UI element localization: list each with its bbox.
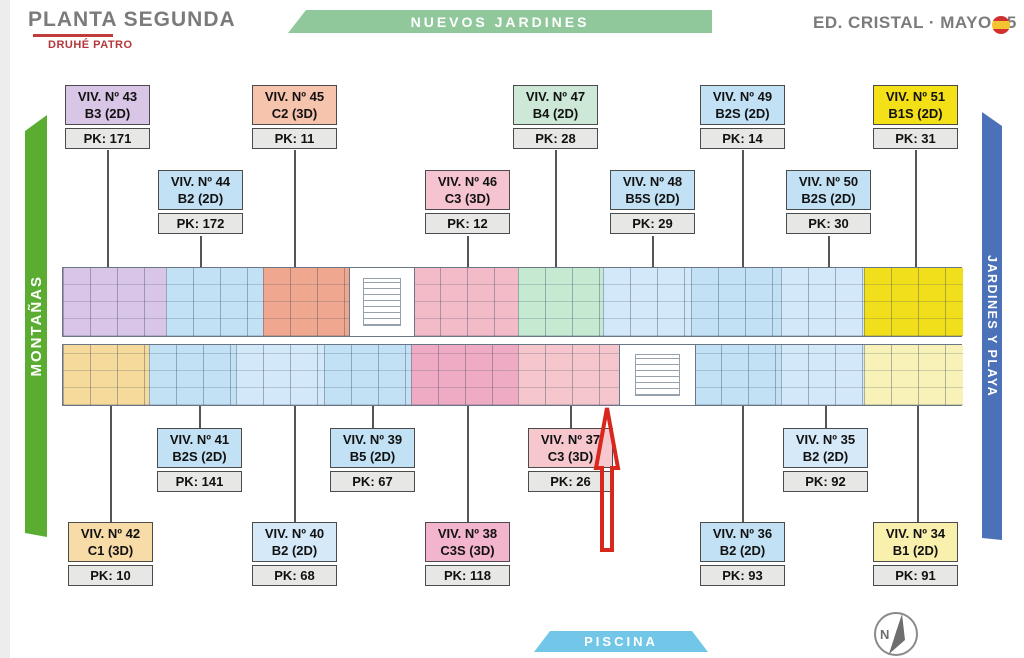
leader-line (828, 236, 830, 267)
unit-type: B1 (2D) (875, 542, 956, 559)
brand-name: DRUHÉ PATRO (48, 39, 133, 51)
unit-label-40[interactable]: VIV. Nº 40 B2 (2D) PK: 68 (252, 522, 337, 586)
plan-section-38[interactable] (411, 345, 518, 405)
leader-line (294, 406, 296, 522)
leader-line (825, 406, 827, 428)
banner-montanas: MONTAÑAS (25, 115, 47, 537)
plan-section-43[interactable] (63, 268, 166, 336)
unit-box-43[interactable]: VIV. Nº 43 B3 (2D) (65, 85, 150, 125)
unit-type: B2S (2D) (788, 190, 869, 207)
unit-type: B5 (2D) (332, 448, 413, 465)
south-wing (62, 344, 962, 406)
banner-jardines-playa-label: JARDINES Y PLAYA (985, 255, 999, 397)
unit-number: VIV. Nº 49 (702, 88, 783, 105)
unit-parking-41: PK: 141 (157, 471, 242, 492)
stair-core (349, 268, 415, 336)
plan-section-34[interactable] (864, 345, 963, 405)
unit-label-51[interactable]: VIV. Nº 51 B1S (2D) PK: 31 (873, 85, 958, 149)
plan-section-41[interactable] (149, 345, 236, 405)
leader-line (742, 406, 744, 522)
leader-line (742, 150, 744, 267)
unit-parking-34: PK: 91 (873, 565, 958, 586)
title-underline (33, 34, 113, 37)
unit-type: C2 (3D) (254, 105, 335, 122)
unit-parking-49: PK: 14 (700, 128, 785, 149)
unit-box-35[interactable]: VIV. Nº 35 B2 (2D) (783, 428, 868, 468)
elevator-core (619, 345, 696, 405)
unit-label-38[interactable]: VIV. Nº 38 C3S (3D) PK: 118 (425, 522, 510, 586)
unit-number: VIV. Nº 44 (160, 173, 241, 190)
unit-type: C1 (3D) (70, 542, 151, 559)
plan-section-45[interactable] (263, 268, 349, 336)
unit-label-47[interactable]: VIV. Nº 47 B4 (2D) PK: 28 (513, 85, 598, 149)
unit-label-43[interactable]: VIV. Nº 43 B3 (2D) PK: 171 (65, 85, 150, 149)
unit-parking-43: PK: 171 (65, 128, 150, 149)
unit-box-45[interactable]: VIV. Nº 45 C2 (3D) (252, 85, 337, 125)
plan-section-37[interactable] (518, 345, 619, 405)
plan-section-46[interactable] (413, 268, 518, 336)
leader-line (915, 150, 917, 267)
plan-section-36[interactable] (694, 345, 781, 405)
plan-section-48[interactable] (603, 268, 691, 336)
unit-type: B2S (2D) (159, 448, 240, 465)
unit-box-48[interactable]: VIV. Nº 48 B5S (2D) (610, 170, 695, 210)
plan-section-44[interactable] (166, 268, 263, 336)
unit-parking-48: PK: 29 (610, 213, 695, 234)
unit-type: B4 (2D) (515, 105, 596, 122)
floor-plan-page: PLANTA SEGUNDA DRUHÉ PATRO NUEVOS JARDIN… (0, 0, 1024, 658)
unit-parking-36: PK: 93 (700, 565, 785, 586)
plan-section-49[interactable] (691, 268, 781, 336)
plan-section-40[interactable] (236, 345, 324, 405)
unit-number: VIV. Nº 48 (612, 173, 693, 190)
plan-section-42[interactable] (63, 345, 149, 405)
leader-line (555, 150, 557, 267)
unit-parking-51: PK: 31 (873, 128, 958, 149)
plan-section-39[interactable] (324, 345, 411, 405)
banner-piscina: PISCINA (534, 631, 708, 652)
leader-line (199, 406, 201, 428)
unit-number: VIV. Nº 46 (427, 173, 508, 190)
unit-number: VIV. Nº 51 (875, 88, 956, 105)
unit-type: B2 (2D) (160, 190, 241, 207)
unit-label-42[interactable]: VIV. Nº 42 C1 (3D) PK: 10 (68, 522, 153, 586)
building-floor-plan (62, 267, 962, 406)
unit-box-38[interactable]: VIV. Nº 38 C3S (3D) (425, 522, 510, 562)
unit-box-34[interactable]: VIV. Nº 34 B1 (2D) (873, 522, 958, 562)
unit-type: B3 (2D) (67, 105, 148, 122)
leader-line (467, 236, 469, 267)
unit-number: VIV. Nº 45 (254, 88, 335, 105)
north-wing (62, 267, 962, 337)
leader-line (917, 406, 919, 522)
banner-jardines-playa: JARDINES Y PLAYA (982, 112, 1002, 540)
project-title: ED. CRISTAL · MAYO 25 (813, 13, 1017, 33)
unit-box-49[interactable]: VIV. Nº 49 B2S (2D) (700, 85, 785, 125)
unit-box-36[interactable]: VIV. Nº 36 B2 (2D) (700, 522, 785, 562)
unit-number: VIV. Nº 36 (702, 525, 783, 542)
plan-section-35[interactable] (781, 345, 864, 405)
unit-box-42[interactable]: VIV. Nº 42 C1 (3D) (68, 522, 153, 562)
unit-label-39[interactable]: VIV. Nº 39 B5 (2D) PK: 67 (330, 428, 415, 492)
leader-line (570, 406, 572, 428)
selection-arrow-icon (591, 406, 623, 554)
leader-line (200, 236, 202, 267)
unit-label-45[interactable]: VIV. Nº 45 C2 (3D) PK: 11 (252, 85, 337, 149)
leader-line (107, 150, 109, 267)
plan-section-50[interactable] (781, 268, 864, 336)
leader-line (467, 406, 469, 522)
unit-parking-40: PK: 68 (252, 565, 337, 586)
unit-type: B2 (2D) (785, 448, 866, 465)
unit-type: B2 (2D) (702, 542, 783, 559)
unit-type: B2 (2D) (254, 542, 335, 559)
banner-nuevos-jardines: NUEVOS JARDINES (288, 10, 712, 33)
unit-parking-35: PK: 92 (783, 471, 868, 492)
unit-box-41[interactable]: VIV. Nº 41 B2S (2D) (157, 428, 242, 468)
unit-label-36[interactable]: VIV. Nº 36 B2 (2D) PK: 93 (700, 522, 785, 586)
unit-number: VIV. Nº 34 (875, 525, 956, 542)
unit-box-44[interactable]: VIV. Nº 44 B2 (2D) (158, 170, 243, 210)
plan-section-47[interactable] (518, 268, 603, 336)
unit-number: VIV. Nº 40 (254, 525, 335, 542)
unit-label-44[interactable]: VIV. Nº 44 B2 (2D) PK: 172 (158, 170, 243, 234)
unit-number: VIV. Nº 50 (788, 173, 869, 190)
unit-box-46[interactable]: VIV. Nº 46 C3 (3D) (425, 170, 510, 210)
unit-type: B5S (2D) (612, 190, 693, 207)
unit-type: C3S (3D) (427, 542, 508, 559)
unit-type: C3 (3D) (427, 190, 508, 207)
unit-parking-45: PK: 11 (252, 128, 337, 149)
unit-parking-46: PK: 12 (425, 213, 510, 234)
unit-number: VIV. Nº 41 (159, 431, 240, 448)
unit-number: VIV. Nº 43 (67, 88, 148, 105)
unit-label-35[interactable]: VIV. Nº 35 B2 (2D) PK: 92 (783, 428, 868, 492)
unit-parking-44: PK: 172 (158, 213, 243, 234)
unit-box-51[interactable]: VIV. Nº 51 B1S (2D) (873, 85, 958, 125)
leader-line (110, 406, 112, 522)
unit-label-48[interactable]: VIV. Nº 48 B5S (2D) PK: 29 (610, 170, 695, 234)
leader-line (652, 236, 654, 267)
unit-number: VIV. Nº 35 (785, 431, 866, 448)
unit-number: VIV. Nº 42 (70, 525, 151, 542)
unit-box-47[interactable]: VIV. Nº 47 B4 (2D) (513, 85, 598, 125)
unit-box-50[interactable]: VIV. Nº 50 B2S (2D) (786, 170, 871, 210)
unit-parking-39: PK: 67 (330, 471, 415, 492)
left-edge-strip (0, 0, 10, 658)
page-title: PLANTA SEGUNDA (28, 8, 236, 32)
unit-parking-50: PK: 30 (786, 213, 871, 234)
plan-section-51[interactable] (864, 268, 963, 336)
unit-label-50[interactable]: VIV. Nº 50 B2S (2D) PK: 30 (786, 170, 871, 234)
unit-box-39[interactable]: VIV. Nº 39 B5 (2D) (330, 428, 415, 468)
unit-label-49[interactable]: VIV. Nº 49 B2S (2D) PK: 14 (700, 85, 785, 149)
unit-label-46[interactable]: VIV. Nº 46 C3 (3D) PK: 12 (425, 170, 510, 234)
banner-montanas-label: MONTAÑAS (28, 275, 45, 377)
unit-number: VIV. Nº 39 (332, 431, 413, 448)
unit-box-40[interactable]: VIV. Nº 40 B2 (2D) (252, 522, 337, 562)
north-compass-icon: N (872, 610, 920, 658)
unit-parking-38: PK: 118 (425, 565, 510, 586)
leader-line (294, 150, 296, 267)
leader-line (372, 406, 374, 428)
spain-flag-icon (992, 16, 1010, 34)
unit-label-41[interactable]: VIV. Nº 41 B2S (2D) PK: 141 (157, 428, 242, 492)
unit-parking-47: PK: 28 (513, 128, 598, 149)
unit-type: B1S (2D) (875, 105, 956, 122)
unit-label-34[interactable]: VIV. Nº 34 B1 (2D) PK: 91 (873, 522, 958, 586)
compass-north-label: N (880, 627, 889, 642)
unit-type: B2S (2D) (702, 105, 783, 122)
unit-number: VIV. Nº 47 (515, 88, 596, 105)
unit-parking-42: PK: 10 (68, 565, 153, 586)
unit-number: VIV. Nº 38 (427, 525, 508, 542)
